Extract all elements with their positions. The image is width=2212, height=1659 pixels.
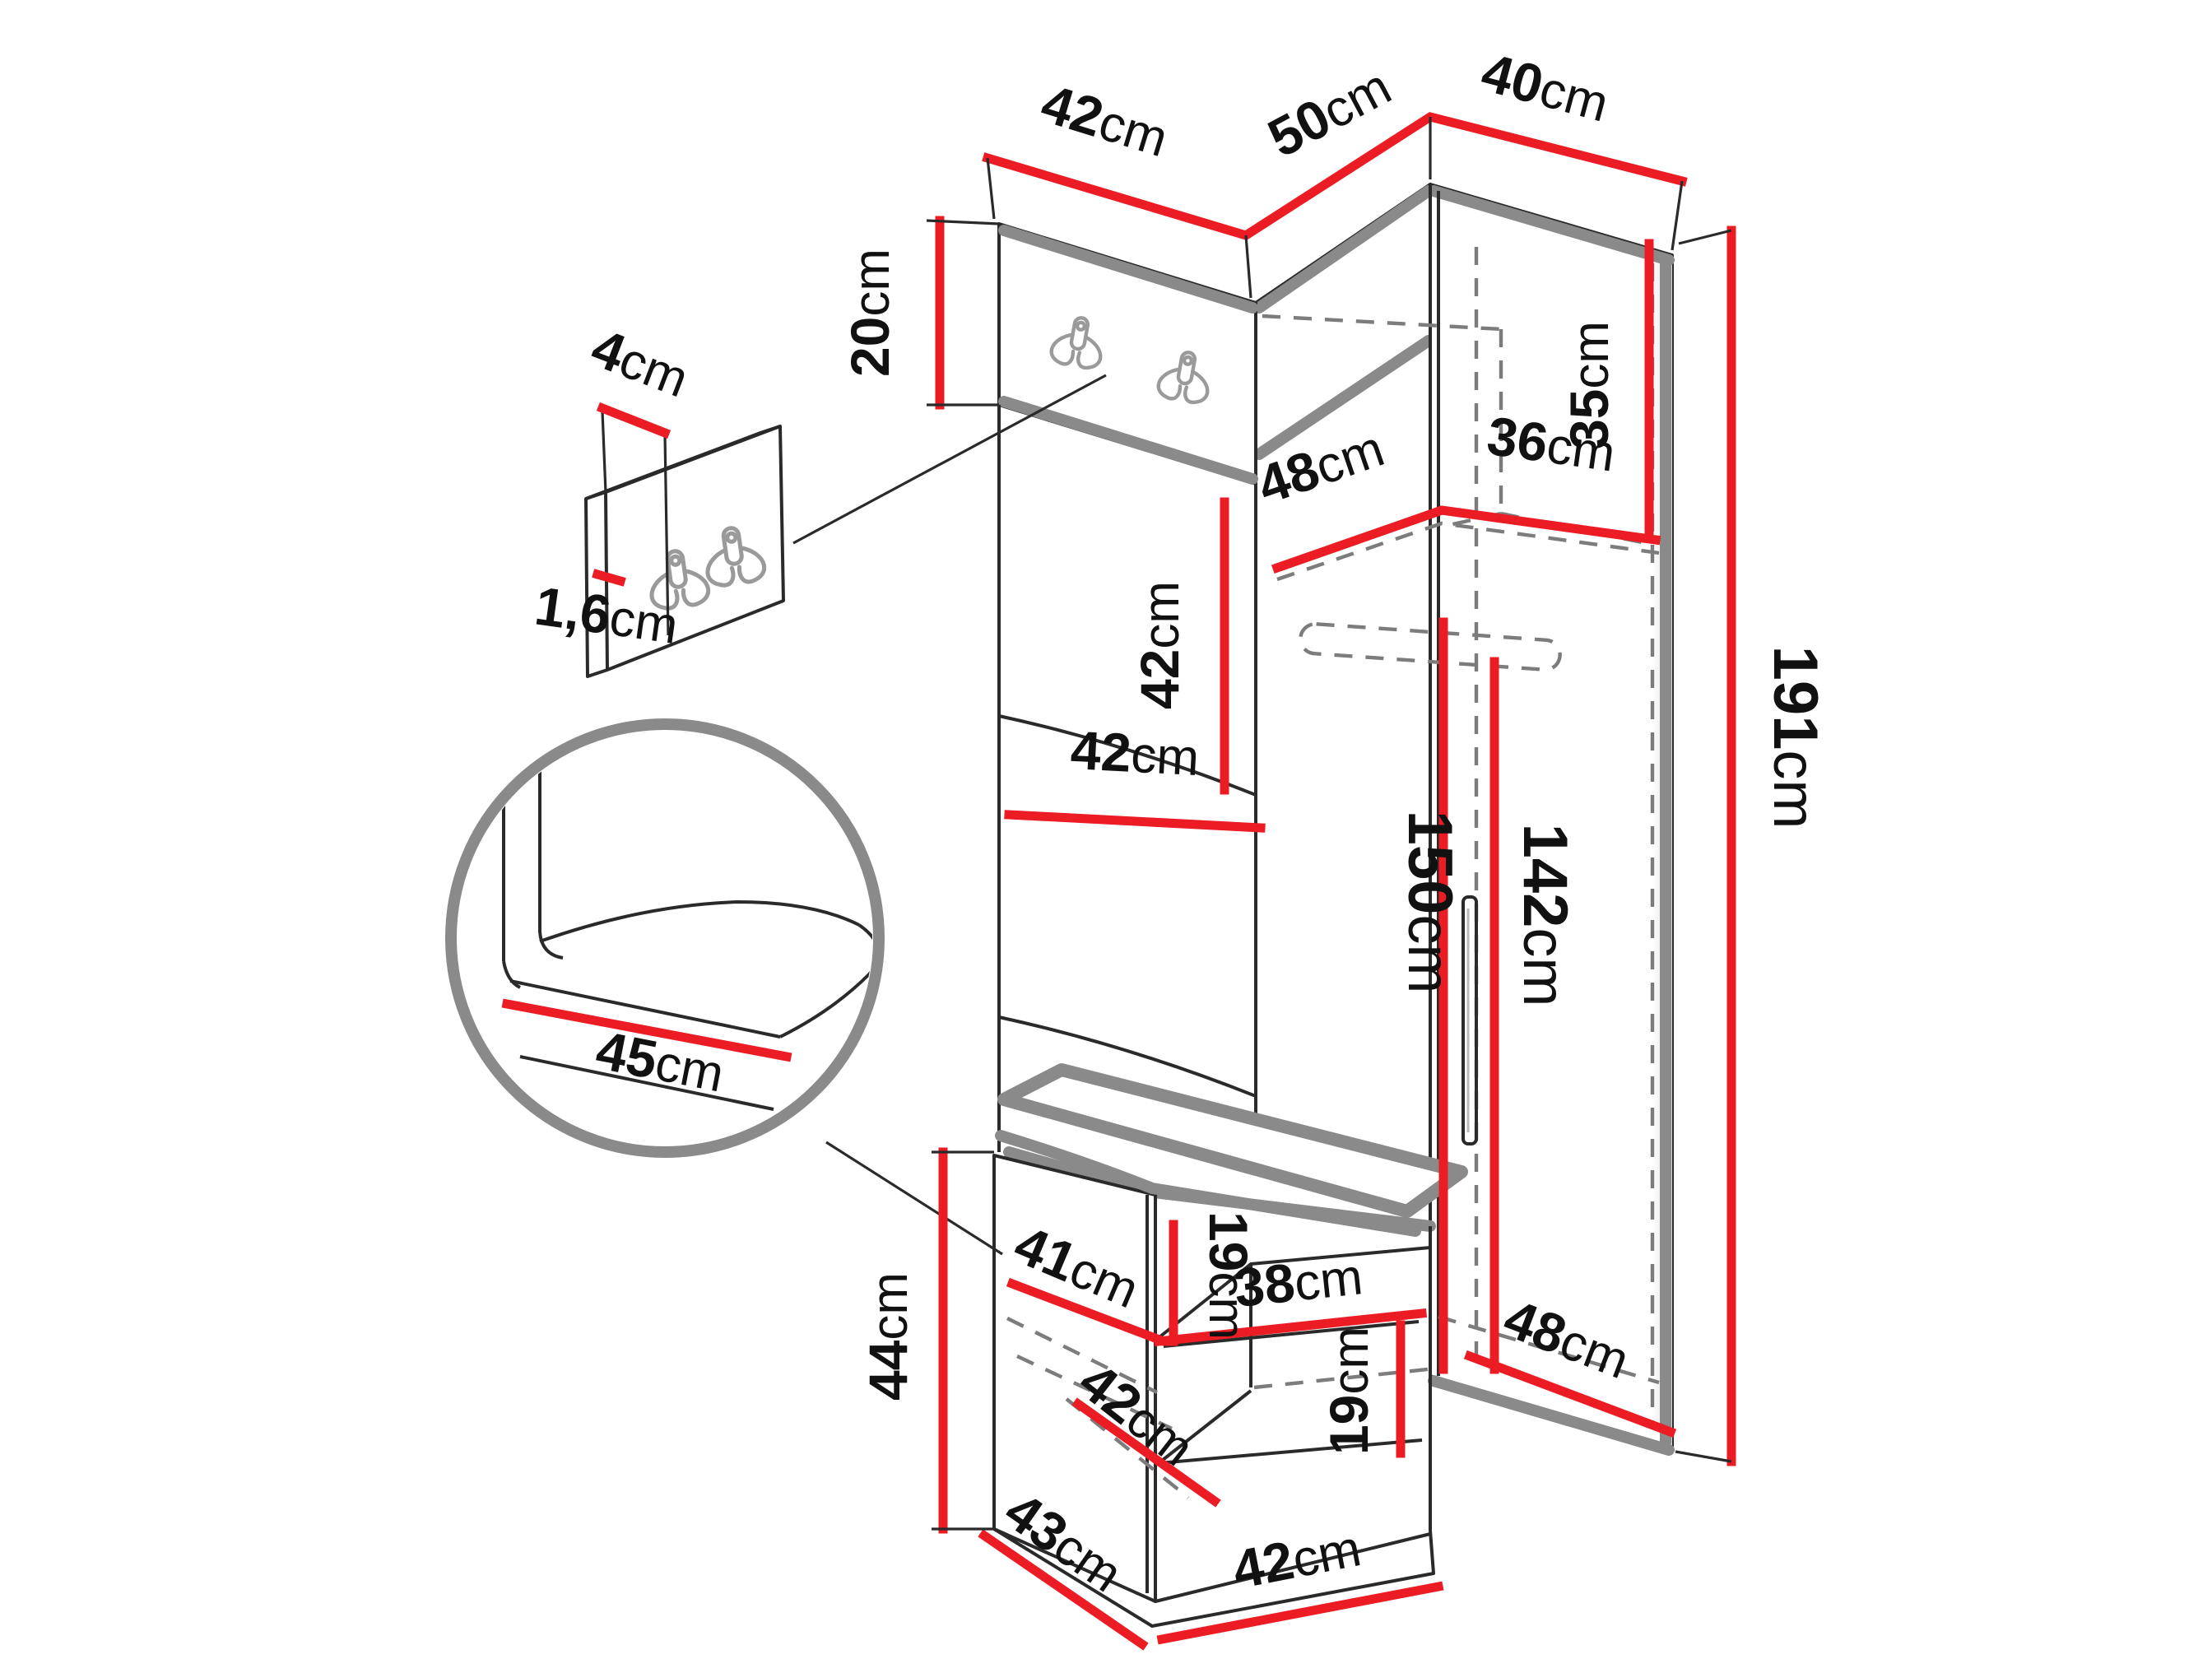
dim-label-top-width-right: 40cm: [1475, 41, 1615, 133]
dim-label-bench-shelf-depth: 38cm: [1231, 1244, 1365, 1318]
hook-board: [999, 224, 1256, 484]
dim-line-detail-hook-spacing: [602, 408, 665, 433]
dim-label-interior-height: 150cm: [1395, 811, 1465, 994]
detail-seat-circle: [451, 718, 1002, 1254]
callout-line-hook-board: [793, 375, 1106, 543]
furniture-dimension-diagram: 42cm 50cm 40cm 20cm 42cm 48cm 36cm 35cm …: [0, 0, 2212, 1659]
dim-label-rail-height: 142cm: [1510, 824, 1580, 1007]
diagram-page: 42cm 50cm 40cm 20cm 42cm 48cm 36cm 35cm …: [0, 0, 2212, 1659]
dim-label-top-width-left: 42cm: [1034, 72, 1175, 168]
dim-label-detail-hook-spacing: 4cm: [583, 317, 697, 409]
dim-label-top-compartment-height: 35cm: [1559, 321, 1619, 449]
dim-label-total-height: 191cm: [1760, 646, 1830, 829]
dim-line-detail-thickness: [597, 574, 620, 581]
dim-label-hook-board-height: 20cm: [839, 249, 900, 377]
panel-column: [999, 405, 1256, 1162]
dim-label-bench-height: 44cm: [857, 1272, 918, 1401]
corner-section: [1256, 184, 1430, 458]
dim-label-bench-lower-gap: 19cm: [1318, 1327, 1379, 1455]
dim-label-base-front-width: 42cm: [1228, 1516, 1365, 1600]
dim-line-panel-width: [1009, 815, 1261, 828]
dim-line-base-front-width: [1162, 1587, 1438, 1639]
dim-label-panel-width: 42cm: [1069, 719, 1201, 787]
dim-label-upper-panel-height: 42cm: [1129, 581, 1190, 709]
callout-line-seat: [826, 1142, 1002, 1254]
